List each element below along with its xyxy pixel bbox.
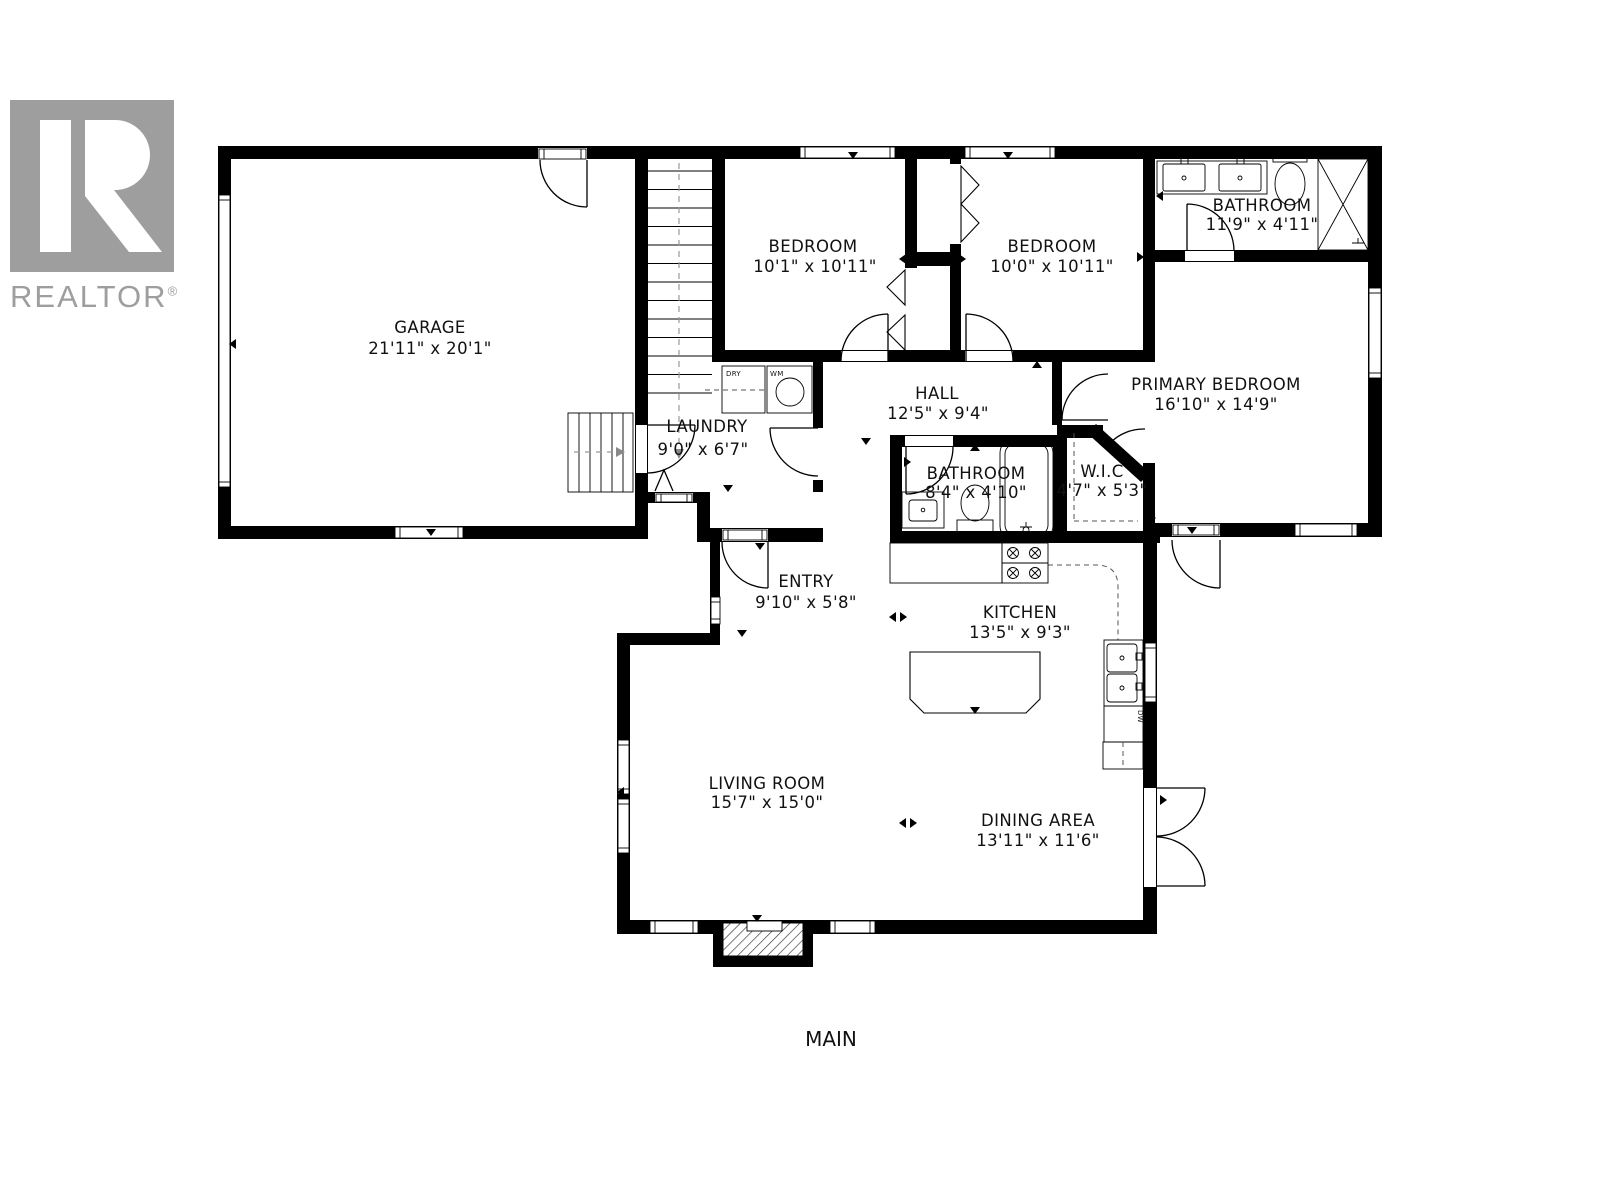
window — [1295, 524, 1357, 536]
direction-marker-icon — [899, 818, 906, 828]
direction-marker-icon — [861, 438, 871, 445]
window — [1145, 643, 1156, 702]
direction-marker-icon — [889, 612, 896, 622]
floorplan-page: REALTOR® — [0, 0, 1600, 1200]
garage-side-door — [540, 160, 587, 207]
room-label-bathroom-ensuite: BATHROOM — [1213, 196, 1312, 215]
room-dims-laundry: 9'0" x 6'7" — [658, 440, 749, 459]
room-label-bedroom-1: BEDROOM — [769, 237, 858, 256]
direction-marker-icon — [899, 254, 906, 264]
direction-marker-icon — [900, 612, 907, 622]
laundry-hall-door — [770, 428, 818, 476]
door-opening — [905, 436, 953, 446]
door-opening — [965, 351, 1013, 361]
room-label-living-room: LIVING ROOM — [709, 774, 826, 793]
patio-french-door-top — [1157, 788, 1205, 836]
staircase — [648, 171, 712, 393]
room-dims-wic: 4'7" x 5'3" — [1057, 481, 1148, 500]
door-opening — [905, 268, 917, 350]
door-opening — [636, 425, 647, 473]
room-dims-bedroom-2: 10'0" x 10'11" — [990, 257, 1114, 276]
patio-french-door-bottom — [1157, 837, 1205, 886]
wall-segment — [712, 350, 1155, 362]
room-label-bathroom-main: BATHROOM — [927, 464, 1026, 483]
attic-hatch-icon — [655, 470, 673, 491]
ensuite-shower — [1318, 159, 1368, 250]
wall-segment — [890, 435, 902, 543]
window — [1173, 525, 1219, 535]
front-door — [722, 542, 768, 588]
room-dims-bedroom-1: 10'1" x 10'11" — [753, 257, 877, 276]
room-label-bedroom-2: BEDROOM — [1008, 237, 1097, 256]
wall-segment — [617, 633, 720, 645]
window — [830, 921, 875, 933]
kitchen-stove — [1002, 543, 1048, 583]
direction-marker-icon — [910, 818, 917, 828]
dishwasher-label: DW — [1136, 710, 1144, 723]
window — [723, 530, 767, 540]
direction-marker-icon — [723, 485, 733, 492]
fireplace — [713, 920, 813, 967]
direction-marker-icon — [1160, 795, 1167, 805]
kitchen-island — [910, 652, 1040, 713]
washer-label: WM — [770, 370, 784, 378]
primary-deck-door — [1172, 540, 1220, 588]
window — [618, 740, 629, 794]
window — [618, 799, 629, 853]
floor-level-label: MAIN — [805, 1027, 857, 1051]
direction-marker-icon — [1032, 361, 1042, 368]
wall-segment — [697, 492, 710, 542]
kitchen-dishwasher: DW — [1104, 706, 1144, 742]
wall-segment — [1052, 362, 1062, 425]
door-opening — [1144, 788, 1156, 887]
room-label-wic: W.I.C — [1080, 462, 1123, 481]
window — [539, 149, 586, 159]
door-opening — [950, 164, 961, 244]
direction-marker-icon — [959, 254, 966, 264]
room-label-garage: GARAGE — [394, 318, 465, 337]
landing-direction-arrow-icon — [616, 447, 625, 457]
direction-marker-icon — [737, 630, 747, 637]
window — [219, 195, 230, 487]
door-opening — [1185, 251, 1234, 261]
room-dims-primary-bedroom: 16'10" x 14'9" — [1154, 395, 1278, 414]
window — [656, 494, 692, 502]
ensuite-vanity — [1157, 153, 1267, 194]
room-label-primary-bedroom: PRIMARY BEDROOM — [1131, 375, 1301, 394]
room-dims-dining-area: 13'11" x 11'6" — [976, 831, 1100, 850]
direction-marker-icon — [904, 457, 911, 467]
room-label-hall: HALL — [915, 384, 959, 403]
window — [650, 921, 698, 933]
room-dims-kitchen: 13'5" x 9'3" — [969, 623, 1071, 642]
door-opening — [841, 351, 888, 361]
door-opening — [813, 428, 823, 480]
room-label-laundry: LAUNDRY — [666, 417, 748, 436]
direction-marker-icon — [755, 543, 765, 550]
room-label-kitchen: KITCHEN — [983, 603, 1057, 622]
wall-segment — [905, 252, 961, 266]
direction-marker-icon — [1137, 252, 1144, 262]
laundry-washer: WM — [767, 366, 812, 413]
floorplan-drawing: DRY WM — [0, 0, 1600, 1200]
room-dims-garage: 21'11" x 20'1" — [368, 339, 492, 358]
dryer-label: DRY — [726, 370, 741, 378]
room-label-dining-area: DINING AREA — [981, 811, 1095, 830]
kitchen-fridge — [1103, 742, 1143, 769]
room-dims-living-room: 15'7" x 15'0" — [711, 793, 824, 812]
room-dims-bathroom-ensuite: 11'9" x 4'11" — [1206, 215, 1319, 234]
wall-segment — [1143, 159, 1155, 362]
window — [1369, 288, 1381, 378]
room-dims-entry: 9'10" x 5'8" — [755, 593, 857, 612]
window — [800, 147, 895, 158]
room-dims-hall: 12'5" x 9'4" — [887, 404, 989, 423]
room-label-entry: ENTRY — [778, 572, 834, 591]
primary-bedroom-door — [1062, 374, 1108, 420]
window — [711, 597, 720, 624]
room-dims-bathroom-main: 8'4" x 4'10" — [925, 483, 1027, 502]
